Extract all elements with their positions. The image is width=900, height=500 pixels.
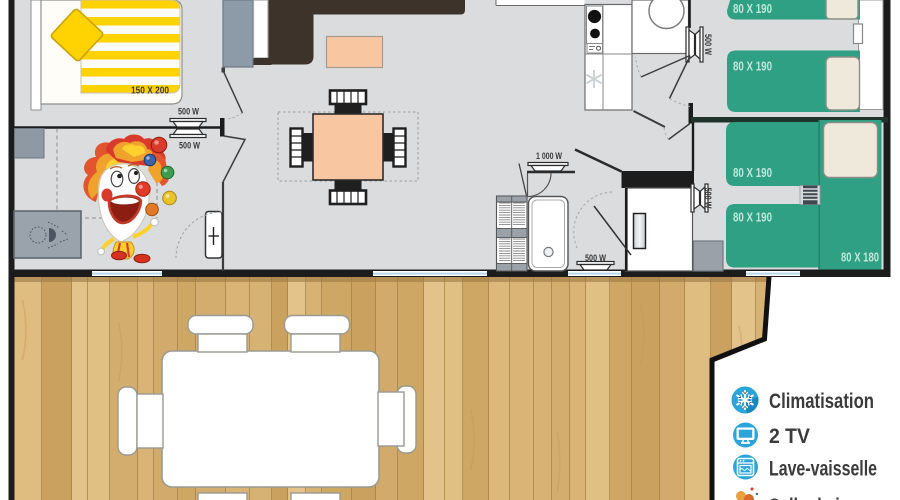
svg-text:500 W: 500 W bbox=[585, 253, 606, 264]
svg-text:80 X 180: 80 X 180 bbox=[841, 251, 879, 265]
svg-text:500 W: 500 W bbox=[178, 107, 199, 118]
svg-text:150 X 200: 150 X 200 bbox=[131, 85, 169, 97]
svg-text:2 TV: 2 TV bbox=[769, 425, 810, 448]
svg-text:500 W: 500 W bbox=[179, 141, 200, 152]
svg-text:1 000 W: 1 000 W bbox=[536, 151, 562, 162]
svg-text:80 X 190: 80 X 190 bbox=[733, 211, 772, 225]
svg-text:80 X 190: 80 X 190 bbox=[733, 60, 772, 74]
svg-text:Salle de jeux: Salle de jeux bbox=[769, 495, 868, 500]
svg-text:500 W: 500 W bbox=[703, 34, 713, 55]
svg-text:80 X 190: 80 X 190 bbox=[733, 166, 772, 180]
svg-text:Climatisation: Climatisation bbox=[769, 390, 874, 413]
svg-text:500 W: 500 W bbox=[703, 188, 713, 209]
svg-text:80 X 190: 80 X 190 bbox=[733, 2, 772, 16]
svg-text:Lave-vaisselle: Lave-vaisselle bbox=[769, 458, 877, 481]
